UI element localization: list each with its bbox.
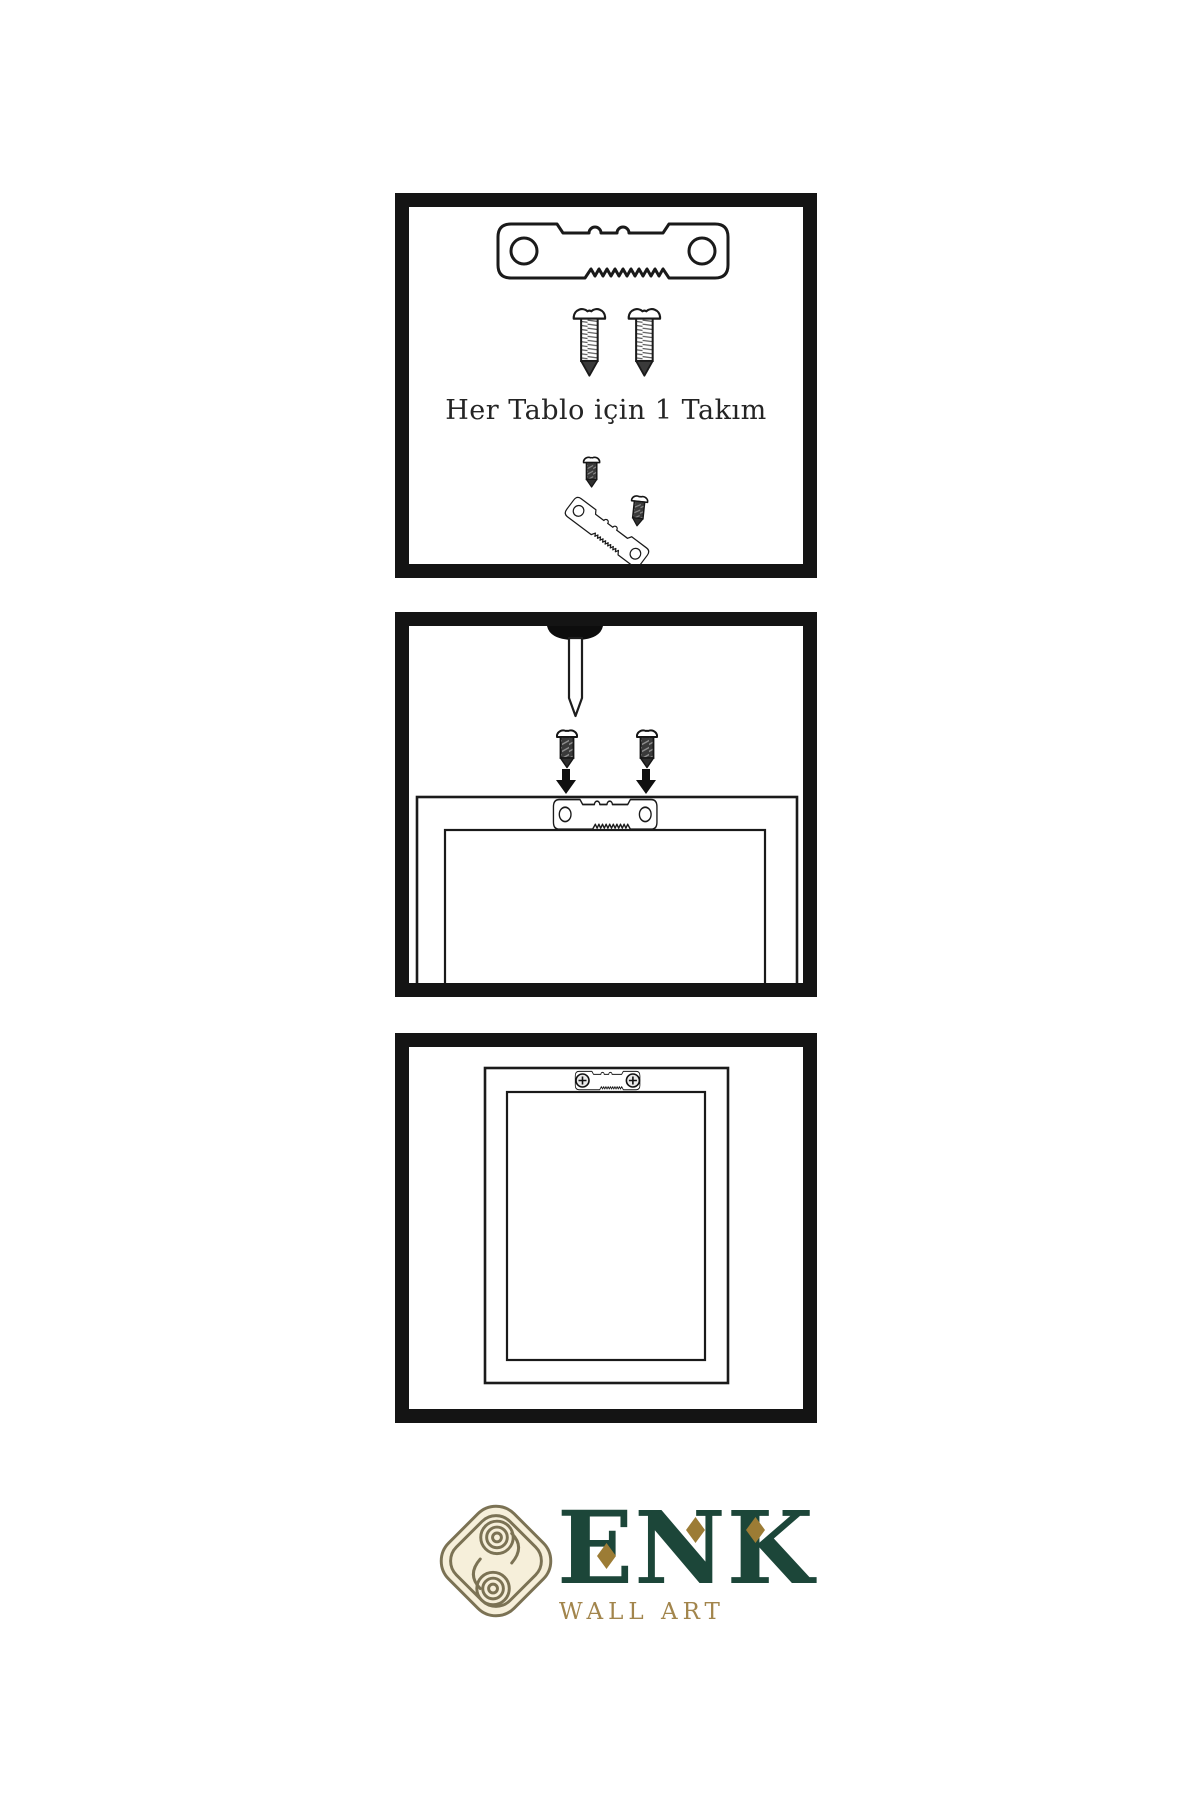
screw-icon — [574, 309, 605, 376]
frame-back-illustration — [417, 797, 797, 983]
instruction-sheet: Her Tablo için 1 Takım — [0, 0, 1200, 1800]
step-1-panel: Her Tablo için 1 Takım — [395, 193, 817, 578]
brand-tagline: WALL ART — [559, 1599, 725, 1625]
screw-icon — [637, 730, 657, 767]
mounted-sawtooth-hanger-icon — [575, 1071, 640, 1089]
down-arrow-icon — [636, 769, 656, 794]
screw-and-hanger-angled-icon — [563, 457, 650, 564]
wall-nail-icon — [547, 626, 603, 716]
sawtooth-hanger-icon — [498, 224, 728, 278]
down-arrow-icon — [556, 769, 576, 794]
screw-icon — [629, 309, 660, 376]
step-3-panel — [395, 1033, 817, 1423]
step-2-panel — [395, 612, 817, 997]
brand-name: ENK — [557, 1498, 815, 1598]
kit-caption: Her Tablo için 1 Takım — [409, 395, 803, 426]
knot-logo-icon — [437, 1500, 555, 1622]
screw-icon — [557, 730, 577, 767]
sawtooth-hanger-icon — [553, 800, 657, 830]
hanging-frame-illustration — [485, 1068, 728, 1383]
